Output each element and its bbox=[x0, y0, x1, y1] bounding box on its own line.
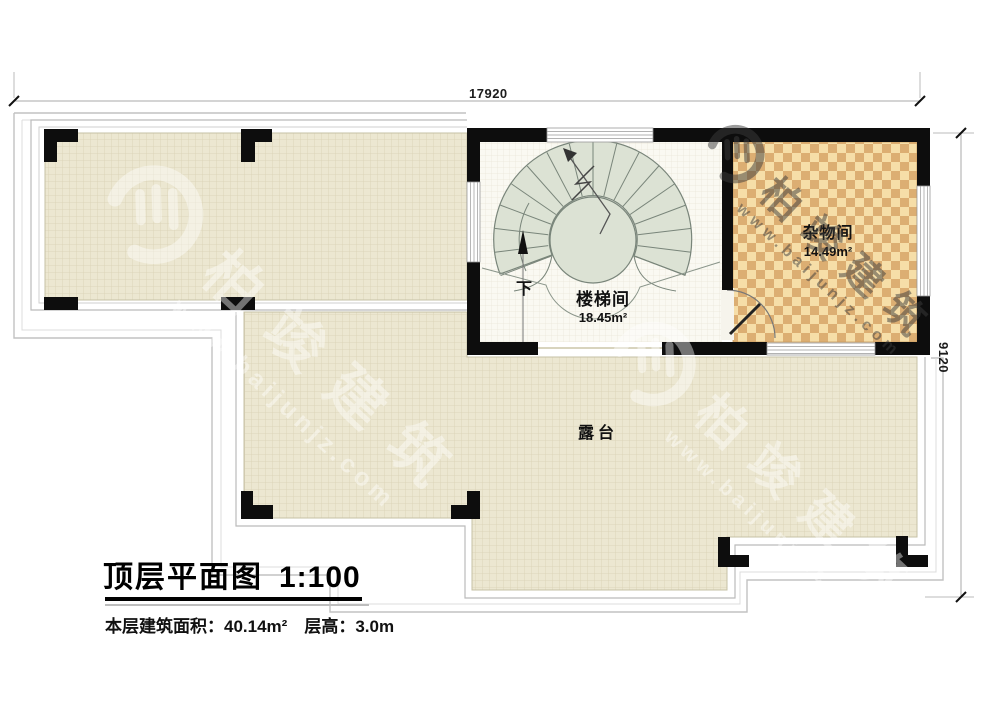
window-storage-east bbox=[917, 186, 930, 296]
floor-plan-page: 17920 9120 杂物间 14.49m² 楼梯间 18.45m² 下 露台 … bbox=[0, 0, 1000, 706]
drawing-scale: 1:100 bbox=[279, 561, 361, 594]
window-stair-top bbox=[547, 128, 653, 142]
dimension-top: 17920 bbox=[469, 86, 508, 101]
floor-info: 本层建筑面积：40.14m² 层高：3.0m bbox=[105, 612, 394, 637]
stairwell-room bbox=[480, 140, 722, 348]
stair-landing bbox=[550, 197, 636, 283]
dimension-right: 9120 bbox=[936, 342, 951, 373]
storage-room bbox=[721, 142, 917, 342]
title-underline bbox=[105, 597, 362, 601]
page-title: 顶层平面图 bbox=[103, 561, 263, 594]
title-underline-thin bbox=[105, 604, 369, 606]
window-stair-west bbox=[467, 182, 480, 262]
window-storage-south bbox=[767, 343, 875, 355]
title-block: 顶层平面图1:100 本层建筑面积：40.14m² 层高：3.0m bbox=[103, 552, 361, 596]
